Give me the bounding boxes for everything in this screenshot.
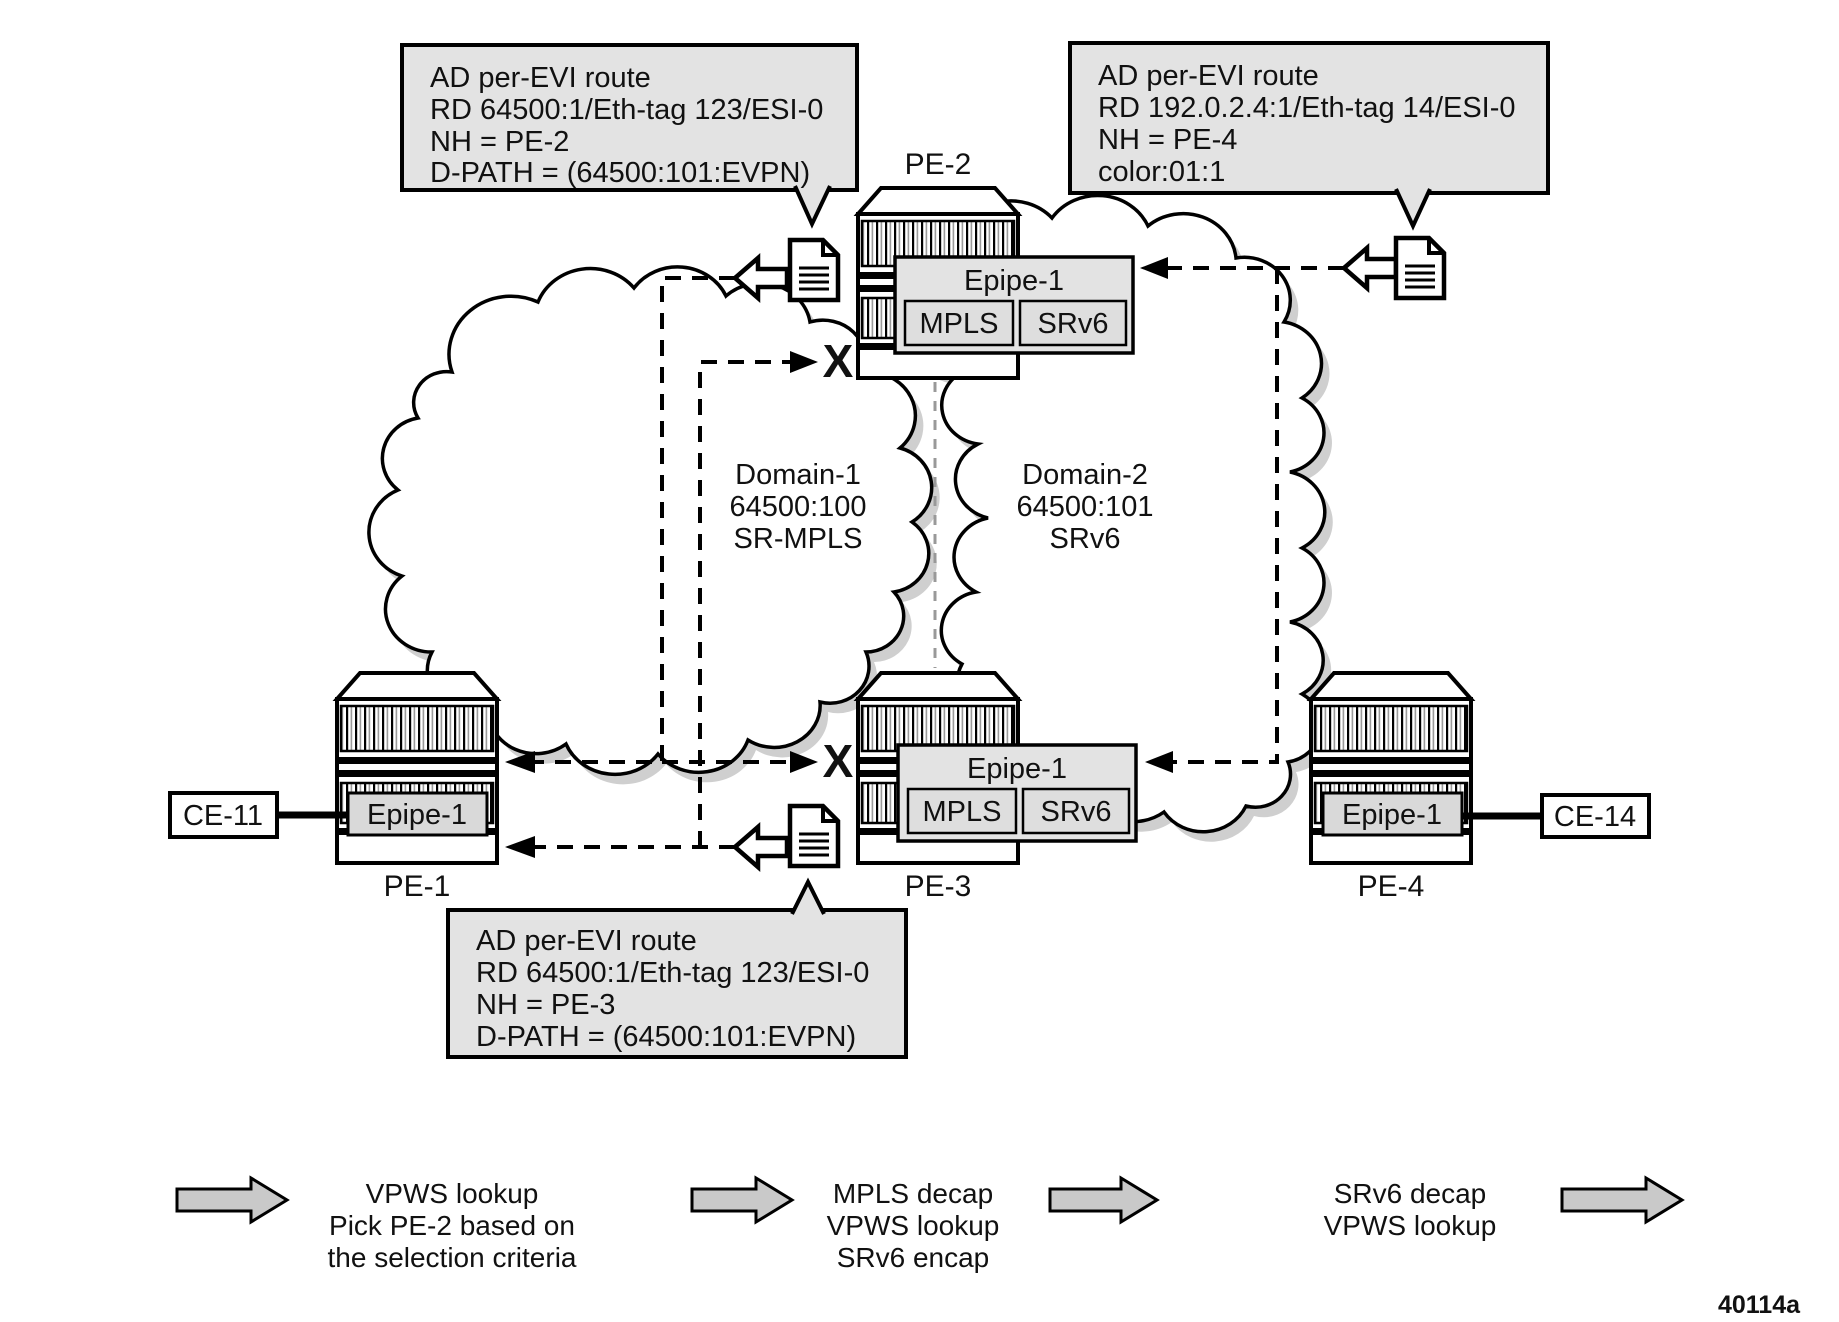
callout-pe4-line1: AD per-EVI route [1098, 60, 1319, 92]
callout-pe4-line4: color:01:1 [1098, 156, 1225, 188]
pe1-label: PE-1 [384, 870, 451, 903]
pe3-mpls-label: MPLS [923, 796, 1002, 828]
callout-pe2-route: AD per-EVI route RD 64500:1/Eth-tag 123/… [402, 45, 857, 224]
callout-pe2-line2: RD 64500:1/Eth-tag 123/ESI-0 [430, 94, 823, 126]
domain2-id: 64500:101 [1016, 491, 1153, 523]
pe2-label: PE-2 [905, 148, 972, 181]
pe4-route-document-icon [1396, 238, 1444, 298]
legend-step2-line2: VPWS lookup [827, 1210, 1000, 1241]
ce14-box: CE-14 [1542, 795, 1649, 837]
pe4-epipe-label: Epipe-1 [1342, 799, 1442, 831]
pe3-advert-arrow-icon [735, 827, 787, 867]
pe1-epipe-label: Epipe-1 [367, 799, 467, 831]
pe2-mpls-label: MPLS [920, 308, 999, 340]
arrowhead-into-pe3-rejected [790, 751, 818, 773]
legend-arrow-2 [692, 1178, 792, 1222]
domain1-id: 64500:100 [729, 491, 866, 523]
pe4-advert-arrow-icon [1344, 248, 1396, 288]
legend-step-2: MPLS decap VPWS lookup SRv6 encap [827, 1178, 1000, 1273]
callout-pe3-route-tail [792, 882, 824, 914]
pe2-route-document-icon [790, 240, 838, 300]
domain2-transport: SRv6 [1050, 523, 1121, 555]
callout-pe2-line3: NH = PE-2 [430, 126, 569, 158]
callout-pe3-line3: NH = PE-3 [476, 989, 615, 1021]
pe2-srv6-label: SRv6 [1038, 308, 1109, 340]
ce14-label: CE-14 [1554, 801, 1636, 833]
domain1-transport: SR-MPLS [734, 523, 863, 555]
callout-pe3-route: AD per-EVI route RD 64500:1/Eth-tag 123/… [448, 882, 906, 1057]
pe3-epipe-label: Epipe-1 [967, 753, 1067, 785]
reject-mark-pe3: X [823, 735, 854, 787]
callout-pe3-line2: RD 64500:1/Eth-tag 123/ESI-0 [476, 957, 869, 989]
callout-pe3-line4: D-PATH = (64500:101:EVPN) [476, 1021, 856, 1053]
pe3-epipe-box: Epipe-1 MPLS SRv6 [898, 745, 1136, 841]
diagram-svg: Domain-1 64500:100 SR-MPLS Domain-2 6450… [0, 0, 1839, 1322]
legend-step-3: SRv6 decap VPWS lookup [1324, 1178, 1497, 1241]
legend-arrow-3 [1050, 1178, 1157, 1222]
legend-step1-line2: Pick PE-2 based on [329, 1210, 575, 1241]
legend-step2-line1: MPLS decap [833, 1178, 993, 1209]
callout-pe4-route: AD per-EVI route RD 192.0.2.4:1/Eth-tag … [1070, 43, 1548, 226]
legend-step2-line3: SRv6 encap [837, 1242, 990, 1273]
legend-step1-line3: the selection criteria [327, 1242, 576, 1273]
pe3-route-document-icon [790, 806, 838, 866]
ce11-label: CE-11 [183, 800, 263, 832]
pe3-label: PE-3 [905, 870, 972, 903]
callout-pe4-route-tail [1396, 189, 1430, 226]
reject-mark-pe2: X [823, 335, 854, 387]
legend-step1-line1: VPWS lookup [366, 1178, 539, 1209]
legend-step3-line1: SRv6 decap [1334, 1178, 1487, 1209]
domain2-name: Domain-2 [1022, 459, 1148, 491]
ce11-box: CE-11 [170, 793, 277, 837]
pe2-epipe-label: Epipe-1 [964, 265, 1064, 297]
callout-pe2-line1: AD per-EVI route [430, 62, 651, 94]
pe2-epipe-box: Epipe-1 MPLS SRv6 [895, 257, 1133, 353]
arrowhead-into-pe1-lower [505, 836, 535, 858]
pe4-label: PE-4 [1358, 870, 1425, 903]
pe4-epipe-box: Epipe-1 [1323, 793, 1462, 835]
callout-pe3-line1: AD per-EVI route [476, 925, 697, 957]
legend-step-1: VPWS lookup Pick PE-2 based on the selec… [327, 1178, 576, 1273]
legend: VPWS lookup Pick PE-2 based on the selec… [177, 1178, 1682, 1273]
pe3-srv6-label: SRv6 [1041, 796, 1112, 828]
callout-pe2-route-tail [795, 186, 830, 224]
callout-pe2-line4: D-PATH = (64500:101:EVPN) [430, 157, 810, 189]
figure-id: 40114a [1718, 1291, 1801, 1319]
legend-arrow-4 [1562, 1178, 1682, 1222]
pe1-epipe-box: Epipe-1 [348, 793, 487, 835]
domain1-label: Domain-1 64500:100 SR-MPLS [729, 459, 866, 555]
legend-step3-line2: VPWS lookup [1324, 1210, 1497, 1241]
evpn-vpws-diagram: Domain-1 64500:100 SR-MPLS Domain-2 6450… [0, 0, 1839, 1322]
callout-pe4-line2: RD 192.0.2.4:1/Eth-tag 14/ESI-0 [1098, 92, 1516, 124]
domain1-name: Domain-1 [735, 459, 861, 491]
legend-arrow-1 [177, 1178, 287, 1222]
callout-pe4-line3: NH = PE-4 [1098, 124, 1237, 156]
